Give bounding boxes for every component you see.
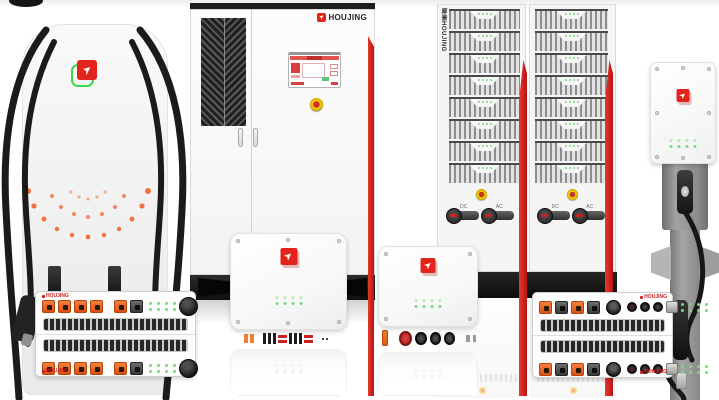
- dc-breaker-switch: [449, 211, 479, 220]
- round-connector: [640, 302, 650, 312]
- module-brand-mark: HOUJING: [640, 370, 667, 375]
- led-indicators: [415, 369, 442, 378]
- brand-logo-icon: ➤: [421, 258, 436, 273]
- module-led-notch: [557, 143, 587, 151]
- power-connector: [90, 300, 103, 313]
- module-led-notch: [557, 33, 587, 41]
- charging-gun: [677, 170, 693, 214]
- power-connector: [74, 300, 87, 313]
- round-connector: [627, 364, 637, 374]
- module-led-notch: [470, 121, 500, 129]
- dc-switch-label: DC: [460, 205, 467, 210]
- led-indicators: [670, 139, 697, 148]
- module-led-notch: [470, 11, 500, 19]
- ac-switch-label: AC: [586, 205, 593, 210]
- module-led-notch: [557, 55, 587, 63]
- rectifier-module-stack: HOUJING HOUJING: [35, 291, 196, 377]
- power-rack-tower-1: 厚景HOUJING DC AC: [437, 4, 526, 272]
- ac-breaker-switch: [575, 211, 605, 220]
- power-module: [535, 97, 608, 117]
- connector-row: [533, 293, 672, 317]
- power-connector: [42, 300, 55, 313]
- gun-connector-tip: [676, 372, 687, 389]
- power-module: [449, 75, 520, 95]
- led-indicators: [275, 364, 302, 373]
- emergency-stop-button: [567, 189, 578, 200]
- power-connector: [587, 363, 600, 376]
- breaker-switch-row: DC AC: [530, 205, 615, 220]
- power-connector: [114, 300, 127, 313]
- power-module: [535, 75, 608, 95]
- connector-row: [533, 355, 672, 379]
- dc-breaker-switch: [540, 211, 570, 220]
- power-connector: [114, 362, 127, 375]
- module-led-notch: [470, 33, 500, 41]
- signal-connector: [130, 362, 143, 375]
- power-rack-tower-2: DC AC: [529, 4, 616, 272]
- module-led-notch: [470, 99, 500, 107]
- module-brand-mark: HOUJING: [42, 369, 69, 374]
- ventilation-grille: [43, 318, 188, 331]
- power-module: [535, 141, 608, 161]
- power-module: [449, 31, 520, 51]
- module-led-notch: [470, 77, 500, 85]
- led-indicators: [149, 302, 176, 311]
- power-module: [449, 97, 520, 117]
- power-connector: [539, 363, 552, 376]
- power-connector: [587, 301, 600, 314]
- power-connector: [90, 362, 103, 375]
- red-accent-stripe: [519, 60, 527, 396]
- door-handle: [253, 128, 258, 147]
- wall-mounted-charger: ➤: [650, 62, 716, 164]
- ventilation-grille: [540, 340, 665, 353]
- emergency-stop-button: [476, 189, 487, 200]
- power-connector: [571, 301, 584, 314]
- power-connector: [539, 301, 552, 314]
- round-connector: [627, 302, 637, 312]
- module-led-notch: [557, 11, 587, 19]
- module-reflection: [230, 349, 347, 396]
- fan: [179, 297, 198, 316]
- module-terminal-row: [244, 331, 340, 346]
- emergency-stop-button: [310, 98, 323, 111]
- round-connector: [653, 302, 663, 312]
- power-module: [535, 53, 608, 73]
- hmi-touchscreen: [288, 52, 341, 88]
- rectifier-module: HOUJING: [533, 335, 672, 377]
- comm-connector: [666, 301, 678, 313]
- power-connector: [74, 362, 87, 375]
- brand-logo-text: HOUJING: [328, 13, 367, 22]
- brand-logo-icon: ➤: [280, 248, 297, 265]
- module-led-notch: [470, 165, 500, 173]
- dc-switch-label: DC: [552, 205, 559, 210]
- led-indicators: [275, 296, 302, 305]
- power-connector: [555, 363, 568, 376]
- ac-switch-label: AC: [496, 205, 503, 210]
- control-knob: [606, 362, 621, 377]
- module-reflection: [378, 352, 478, 396]
- ac-breaker-switch: [484, 211, 514, 220]
- power-module: [449, 119, 520, 139]
- breaker-switch-row: DC AC: [438, 205, 525, 220]
- power-module: [449, 9, 520, 29]
- module-connector-row: [382, 327, 476, 349]
- led-indicators: [149, 364, 176, 373]
- led-indicators: [681, 365, 708, 374]
- rectifier-module-stack: HOUJING HOUJING: [532, 292, 673, 378]
- door-handle: [238, 128, 243, 147]
- power-connector: [571, 363, 584, 376]
- power-module: [449, 141, 520, 161]
- fan: [179, 359, 198, 378]
- power-module: [535, 163, 608, 183]
- power-connector: [58, 300, 71, 313]
- module-led-notch: [470, 143, 500, 151]
- brand-logo-icon: ➤: [317, 13, 326, 22]
- connector-row: [36, 292, 195, 316]
- rectifier-module: [533, 293, 672, 335]
- power-module: [535, 9, 608, 29]
- wall-power-module: ➤: [230, 233, 347, 330]
- module-led-notch: [557, 99, 587, 107]
- ventilation-grille: [201, 18, 246, 126]
- rectifier-module: HOUJING: [36, 334, 195, 376]
- logo-arrow-glyph: ➤: [318, 13, 326, 22]
- product-collage: ➤: [0, 0, 719, 400]
- power-module: [535, 31, 608, 51]
- ventilation-grille: [540, 319, 665, 332]
- control-knob: [606, 300, 621, 315]
- brand-logo-icon: ➤: [677, 89, 690, 102]
- ventilation-grille: [43, 339, 188, 352]
- rectifier-module: [36, 292, 195, 334]
- power-module-stack: [449, 9, 520, 183]
- power-module: [449, 53, 520, 73]
- module-led-notch: [557, 77, 587, 85]
- red-accent-stripe: [368, 36, 374, 396]
- signal-connector: [130, 300, 143, 313]
- power-module: [535, 119, 608, 139]
- led-indicators: [415, 299, 442, 308]
- brand-logo: ➤ HOUJING: [317, 13, 367, 22]
- power-module: [449, 163, 520, 183]
- vertical-brand-label: 厚景HOUJING: [439, 8, 448, 52]
- module-led-notch: [470, 55, 500, 63]
- connector-row: [36, 354, 195, 378]
- module-led-notch: [557, 121, 587, 129]
- module-led-notch: [557, 165, 587, 173]
- power-module-stack: [535, 9, 608, 183]
- power-connector: [555, 301, 568, 314]
- comm-connector: [666, 363, 678, 375]
- led-indicators: [681, 303, 708, 312]
- wall-power-module: ➤: [378, 246, 478, 327]
